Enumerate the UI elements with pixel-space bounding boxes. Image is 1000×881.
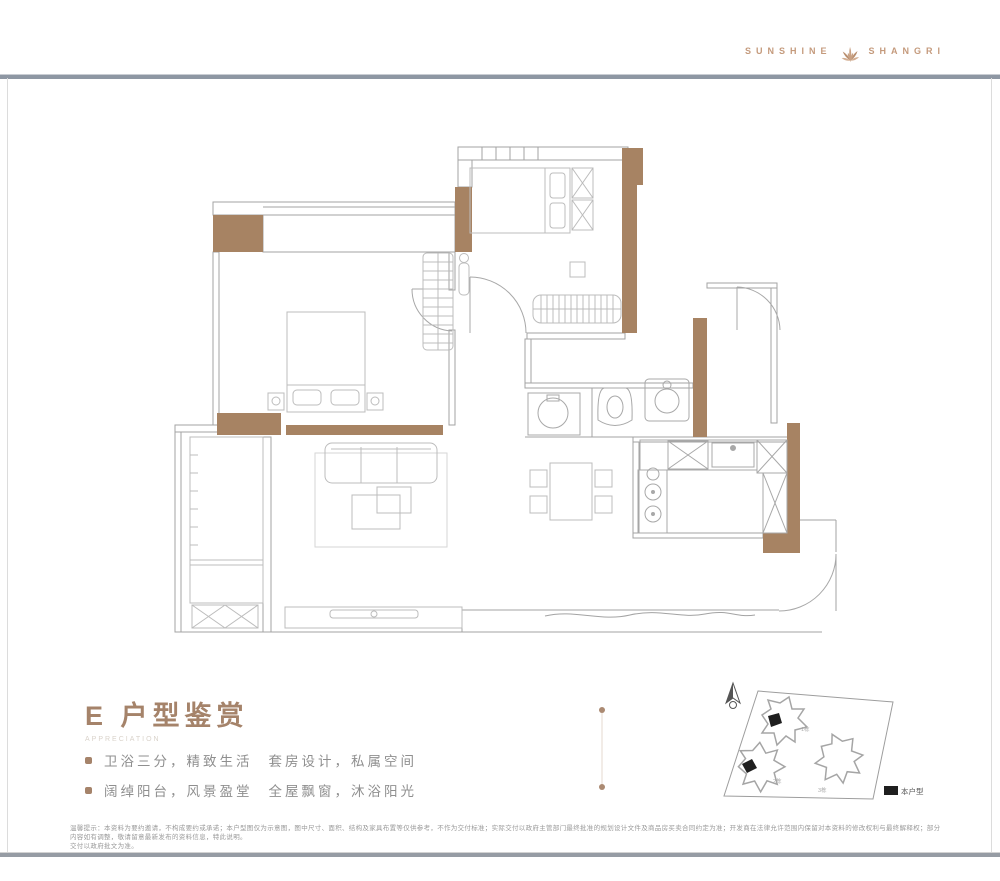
title-block: E 户型鉴赏 APPRECIATION: [85, 694, 249, 743]
feature-text: 全屋飘窗，沐浴阳光: [269, 784, 418, 799]
building-label: 2栋: [773, 777, 782, 785]
building-label: 3栋: [818, 786, 827, 794]
disclaimer-line-2: 交付以政府批文为准。: [70, 842, 942, 851]
kitchen-fixtures: [638, 440, 787, 533]
bedroom2-furniture: [459, 168, 621, 323]
feature-list: 卫浴三分，精致生活套房设计，私属空间 阔绰阳台，风景盈堂全屋飘窗，沐浴阳光: [85, 745, 417, 805]
page-subtitle: APPRECIATION: [85, 736, 249, 743]
site-plan: 1栋 2栋 3栋 本户型: [724, 683, 924, 799]
north-arrow-icon: [726, 683, 740, 709]
legend-label: 本户型: [901, 786, 924, 796]
building-label: 1栋: [801, 725, 810, 733]
feature-item: 卫浴三分，精致生活套房设计，私属空间: [85, 745, 417, 775]
feature-item: 阔绰阳台，风景盈堂全屋飘窗，沐浴阳光: [85, 775, 417, 805]
dining-set: [530, 463, 612, 520]
bullet-icon: [85, 757, 92, 764]
feature-text: 套房设计，私属空间: [269, 754, 418, 769]
disclaimer-line-1: 温馨提示：本资料为要约邀请，不构成要约或承诺；本户型图仅为示意图，图中尺寸、面积…: [70, 824, 942, 842]
decorative-divider: [599, 707, 605, 790]
bullet-icon: [85, 787, 92, 794]
feature-text: 阔绰阳台，风景盈堂: [104, 784, 253, 799]
floor-plan: [175, 147, 836, 632]
brochure-page: { "brand": { "name_left": "SUNSHINE", "n…: [0, 0, 1000, 881]
bedroom-furniture: [268, 253, 453, 412]
page-title: E 户型鉴赏: [85, 694, 249, 733]
living-room-furniture: [285, 443, 462, 628]
balcony-cabinets: [190, 437, 263, 628]
legend-swatch: [884, 786, 898, 795]
feature-text: 卫浴三分，精致生活: [104, 754, 253, 769]
disclaimer: 温馨提示：本资料为要约邀请，不构成要约或承诺；本户型图仅为示意图，图中尺寸、面积…: [70, 824, 942, 851]
